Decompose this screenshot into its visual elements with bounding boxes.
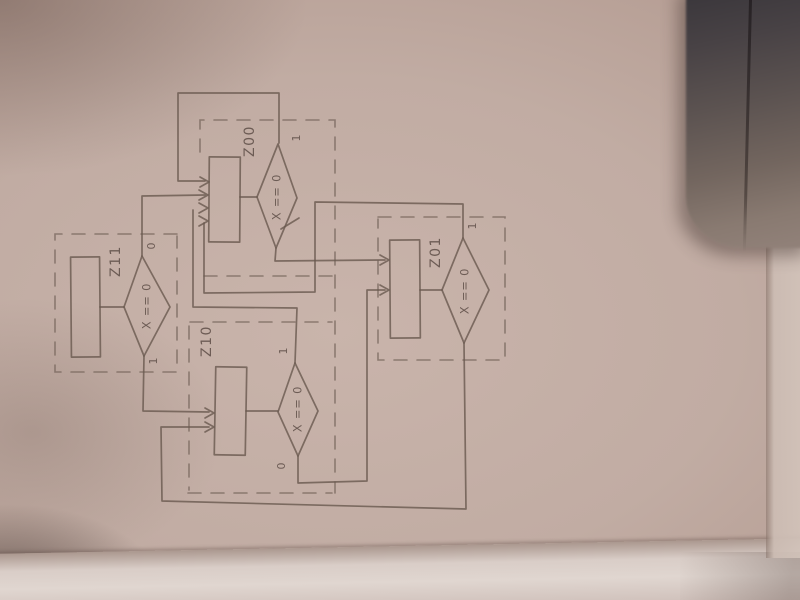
connector-z01-to-z00 xyxy=(204,202,463,293)
branch-label-z10-0: 0 xyxy=(275,463,288,470)
state-box-z11 xyxy=(71,257,101,357)
decision-diamonds xyxy=(124,144,489,456)
branch-label-z10-1: 1 xyxy=(277,348,290,355)
state-label-z10: Z10 xyxy=(199,325,215,357)
state-box-z01 xyxy=(390,240,421,338)
condition-label-z00: X == 0 xyxy=(270,174,284,221)
condition-label-z01: X == 0 xyxy=(458,268,472,315)
branch-label-z00-1: 1 xyxy=(290,135,303,142)
arrowhead-into-z00-a xyxy=(200,177,209,187)
condition-label-z11: X == 0 xyxy=(140,283,154,330)
connector-z00-to-z01 xyxy=(275,248,385,261)
tick-mark-z00-diamond xyxy=(281,218,299,229)
photo-frame: Z00 Z11 Z10 Z01 X == 0 X == 0 X == 0 X =… xyxy=(0,0,800,600)
state-box-z00 xyxy=(209,157,241,242)
connector-z01-to-z10-loop xyxy=(161,343,466,509)
branch-label-z11-1: 1 xyxy=(147,358,160,365)
state-label-z01: Z01 xyxy=(428,236,444,268)
flowchart-drawing: Z00 Z11 Z10 Z01 X == 0 X == 0 X == 0 X =… xyxy=(0,0,800,600)
arrowhead-into-z00-c xyxy=(199,203,208,213)
connectors xyxy=(100,93,466,509)
state-label-z00: Z00 xyxy=(242,125,258,157)
condition-label-z10: X == 0 xyxy=(291,386,305,433)
state-box-z10 xyxy=(214,367,247,456)
branch-label-z01-1: 1 xyxy=(466,223,479,230)
arrowhead-into-z10-a xyxy=(205,408,214,418)
state-label-z11: Z11 xyxy=(108,245,124,277)
text-labels: Z00 Z11 Z10 Z01 X == 0 X == 0 X == 0 X =… xyxy=(108,125,479,469)
branch-label-z11-0: 0 xyxy=(145,243,158,250)
connector-z10-to-z01 xyxy=(298,290,385,483)
connector-z00-self-loop xyxy=(178,93,279,181)
